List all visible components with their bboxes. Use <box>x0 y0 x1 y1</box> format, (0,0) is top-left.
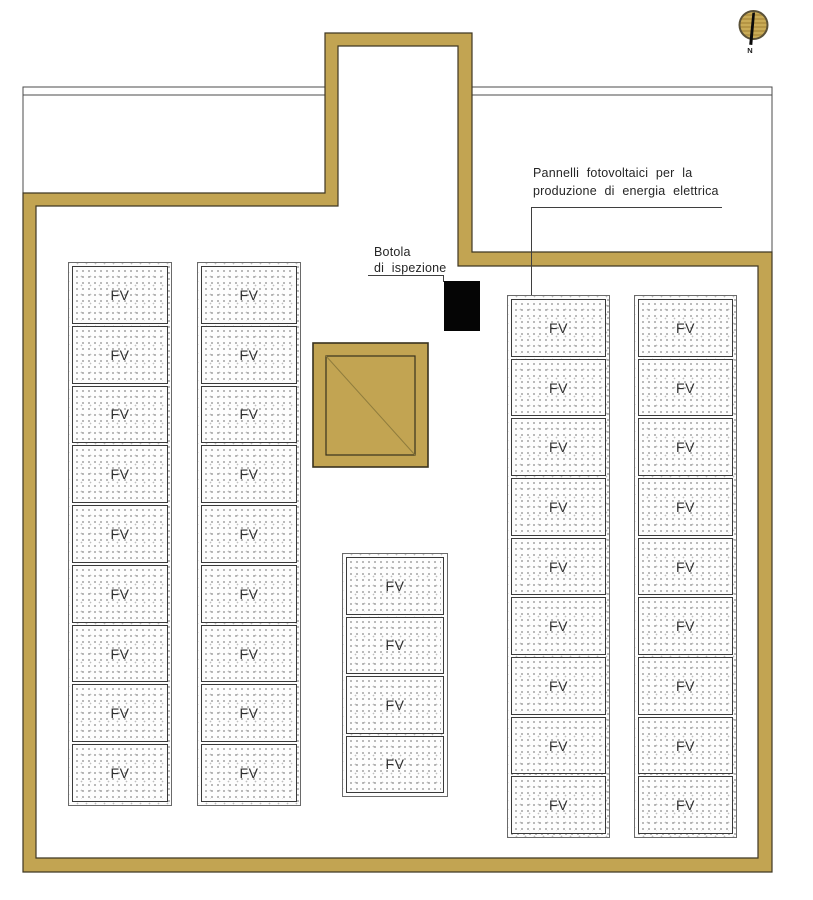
pv-panel: FV <box>72 445 168 503</box>
pv-panel-label: FV <box>676 619 695 633</box>
pv-panel-label: FV <box>239 587 258 601</box>
pv-panel: FV <box>201 565 297 623</box>
pv-panel: FV <box>72 326 168 384</box>
pv-panel: FV <box>638 597 733 655</box>
pv-panel-label: FV <box>676 679 695 693</box>
pv-panel-label: FV <box>676 560 695 574</box>
hatch-leader-line <box>368 276 444 283</box>
pv-panel-label: FV <box>676 798 695 812</box>
pv-panel-label: FV <box>110 647 129 661</box>
pv-annotation-line2: produzione di energia elettrica <box>533 182 719 200</box>
pv-panel: FV <box>201 266 297 324</box>
pv-panel-label: FV <box>110 288 129 302</box>
pv-panel: FV <box>201 326 297 384</box>
pv-panel-label: FV <box>110 467 129 481</box>
pv-panel: FV <box>72 266 168 324</box>
pv-panel-label: FV <box>549 321 568 335</box>
pv-panel-label: FV <box>239 348 258 362</box>
pv-panel-column-4: FVFVFVFVFVFVFVFVFV <box>507 295 610 838</box>
pv-panel-label: FV <box>385 757 404 771</box>
pv-panel: FV <box>638 359 733 417</box>
pv-panel: FV <box>201 684 297 742</box>
pv-panel-label: FV <box>110 766 129 780</box>
pv-panel-label: FV <box>110 587 129 601</box>
pv-panel: FV <box>511 418 606 476</box>
pv-panel: FV <box>511 359 606 417</box>
pv-panel: FV <box>201 445 297 503</box>
pv-panel-label: FV <box>549 500 568 514</box>
pv-panel-label: FV <box>385 579 404 593</box>
lower-roof-outline-left <box>23 87 325 193</box>
pv-panel-column-1: FVFVFVFVFVFVFVFVFV <box>68 262 172 806</box>
pv-panel: FV <box>346 617 444 675</box>
pv-panel-label: FV <box>549 679 568 693</box>
pv-panel: FV <box>72 386 168 444</box>
pv-panel-label: FV <box>676 321 695 335</box>
pv-panel: FV <box>638 478 733 536</box>
hatch-annotation-line2: di ispezione <box>374 260 446 276</box>
pv-panel-label: FV <box>239 647 258 661</box>
pv-panel: FV <box>638 538 733 596</box>
pv-panel: FV <box>72 565 168 623</box>
pv-panel-label: FV <box>239 467 258 481</box>
north-indicator: N <box>740 11 768 55</box>
pv-panel: FV <box>511 478 606 536</box>
north-label: N <box>747 46 752 55</box>
pv-panel-label: FV <box>549 619 568 633</box>
pv-panel-label: FV <box>549 440 568 454</box>
pv-panel-label: FV <box>676 500 695 514</box>
pv-panel: FV <box>346 676 444 734</box>
pv-panel: FV <box>72 684 168 742</box>
pv-annotation: Pannelli fotovoltaici per la produzione … <box>533 164 719 200</box>
pv-panel: FV <box>72 625 168 683</box>
pv-panel: FV <box>201 386 297 444</box>
hatch-annotation: Botola di ispezione <box>374 244 446 276</box>
pv-panel-label: FV <box>110 407 129 421</box>
pv-panel-label: FV <box>110 527 129 541</box>
pv-panel: FV <box>511 538 606 596</box>
pv-panel: FV <box>511 299 606 357</box>
pv-panel-label: FV <box>110 706 129 720</box>
pv-panel-column-2: FVFVFVFVFVFVFVFVFV <box>197 262 301 806</box>
pv-panel-label: FV <box>676 739 695 753</box>
pv-panel-column-3: FVFVFVFV <box>342 553 448 797</box>
pv-panel-label: FV <box>549 798 568 812</box>
pv-panel-column-5: FVFVFVFVFVFVFVFVFV <box>634 295 737 838</box>
pv-panel-label: FV <box>239 288 258 302</box>
pv-panel-label: FV <box>385 698 404 712</box>
pv-panel: FV <box>72 505 168 563</box>
hatch-annotation-line1: Botola <box>374 244 446 260</box>
pv-panel-label: FV <box>676 440 695 454</box>
pv-panel-label: FV <box>110 348 129 362</box>
pv-panel: FV <box>511 717 606 775</box>
pv-panel: FV <box>201 744 297 802</box>
roof-plan-drawing: N Pannelli fotovoltaici per la produzion… <box>0 0 813 900</box>
pv-panel: FV <box>201 505 297 563</box>
pv-panel-label: FV <box>239 527 258 541</box>
pv-panel-label: FV <box>549 739 568 753</box>
pv-panel: FV <box>511 776 606 834</box>
pv-panel: FV <box>638 657 733 715</box>
pv-panel: FV <box>201 625 297 683</box>
pv-panel-label: FV <box>676 381 695 395</box>
skylight <box>313 343 428 467</box>
pv-annotation-line1: Pannelli fotovoltaici per la <box>533 164 719 182</box>
pv-panel: FV <box>638 299 733 357</box>
pv-panel-label: FV <box>385 638 404 652</box>
pv-panel: FV <box>638 717 733 775</box>
pv-panel: FV <box>346 736 444 794</box>
pv-panel: FV <box>638 776 733 834</box>
inspection-hatch <box>444 281 480 331</box>
pv-panel: FV <box>346 557 444 615</box>
pv-panel: FV <box>511 597 606 655</box>
pv-panel-label: FV <box>239 766 258 780</box>
pv-panel-label: FV <box>549 381 568 395</box>
pv-panel: FV <box>72 744 168 802</box>
pv-panel: FV <box>638 418 733 476</box>
pv-panel: FV <box>511 657 606 715</box>
pv-panel-label: FV <box>239 407 258 421</box>
pv-panel-label: FV <box>549 560 568 574</box>
pv-panel-label: FV <box>239 706 258 720</box>
